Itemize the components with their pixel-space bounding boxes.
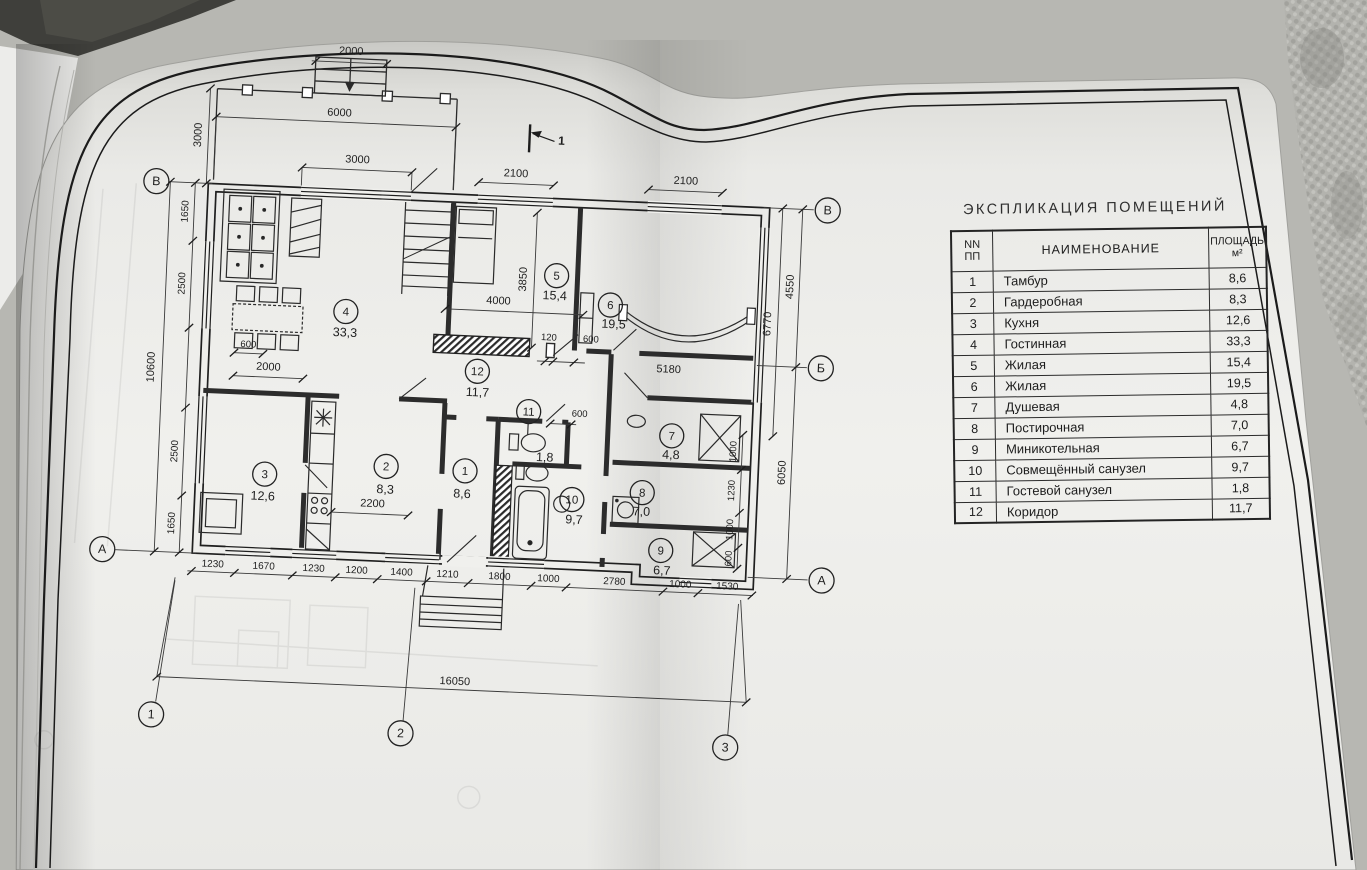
axis-label: В <box>152 174 161 188</box>
dim-label: 4550 <box>784 274 797 299</box>
axis-label: В <box>823 203 832 217</box>
fold-shadow-left <box>586 40 660 870</box>
dim-label: 16050 <box>439 675 470 688</box>
cell-num: 3 <box>952 313 994 335</box>
dim-label: 600 <box>571 408 587 420</box>
dim-label: 600 <box>240 339 256 351</box>
dim-label: 1800 <box>488 571 511 583</box>
room-area: 1,8 <box>536 450 554 465</box>
room-area: 9,7 <box>565 512 583 527</box>
dim-label: 600 <box>583 334 599 346</box>
dim-label: 2500 <box>169 439 181 462</box>
dim-label: 3850 <box>517 267 530 292</box>
cell-num: 4 <box>952 334 994 356</box>
room-number: 2 <box>383 461 390 473</box>
fabric-shade <box>1331 171 1363 239</box>
room-schedule: NN ПП НАИМЕНОВАНИЕ ПЛОЩАДЬ м² 1Тамбур8,6… <box>950 226 1271 524</box>
room-area: 33,3 <box>332 325 357 340</box>
room-area: 19,5 <box>601 317 626 332</box>
dim-label: 1670 <box>252 561 275 573</box>
fireplace-hatch <box>433 334 530 356</box>
cell-area: 12,6 <box>1210 309 1268 331</box>
cell-area: 8,6 <box>1209 267 1267 289</box>
dim-label: 1230 <box>302 563 325 575</box>
room-schedule-table: NN ПП НАИМЕНОВАНИЕ ПЛОЩАДЬ м² 1Тамбур8,6… <box>950 226 1271 524</box>
cell-num: 11 <box>954 481 996 503</box>
dim-label: 600 <box>723 550 735 566</box>
dim-label: 6050 <box>776 460 789 485</box>
cell-name: Кухня <box>994 310 1210 334</box>
dim-label: 1200 <box>345 565 368 577</box>
room-area: 4,8 <box>662 447 680 462</box>
room-number: 12 <box>471 366 484 379</box>
cell-area: 1,8 <box>1212 477 1270 499</box>
cell-area: 11,7 <box>1212 498 1270 520</box>
room-area: 6,7 <box>653 563 671 578</box>
room-number: 9 <box>657 545 664 557</box>
cell-area: 33,3 <box>1210 330 1268 352</box>
room-number: 7 <box>668 431 675 443</box>
cell-name: Гостевой санузел <box>996 478 1212 502</box>
dim-label: 2100 <box>504 167 529 180</box>
cell-area: 19,5 <box>1210 372 1268 394</box>
cell-num: 6 <box>953 376 995 398</box>
cell-name: Гостинная <box>994 331 1210 355</box>
dim-label: 2780 <box>603 576 626 588</box>
axis-label: 3 <box>721 740 729 754</box>
room-area: 8,6 <box>453 486 471 501</box>
room-area: 12,6 <box>250 489 275 504</box>
room-number: 1 <box>462 466 469 478</box>
axis-label: Б <box>816 361 825 375</box>
cell-num: 12 <box>955 502 997 524</box>
cell-area: 15,4 <box>1210 351 1268 373</box>
header-row: NN ПП НАИМЕНОВАНИЕ ПЛОЩАДЬ м² <box>951 227 1266 271</box>
cell-name: Коридор <box>996 499 1212 523</box>
dim-label: 2500 <box>176 272 188 295</box>
dim-label: 1000 <box>669 579 692 591</box>
dim-label: 3000 <box>192 122 205 147</box>
dim-label: 1650 <box>180 200 192 223</box>
dim-label: 4000 <box>486 295 511 308</box>
cell-area: 4,8 <box>1211 393 1269 415</box>
cell-area: 9,7 <box>1212 456 1270 478</box>
table-row: 12Коридор11,7 <box>955 498 1270 523</box>
dim-label: 3000 <box>345 153 370 166</box>
fabric-shade <box>1300 28 1344 88</box>
dim-label: 6000 <box>327 107 352 120</box>
col-header-area: ПЛОЩАДЬ м² <box>1208 227 1266 268</box>
cell-num: 10 <box>954 460 996 482</box>
room-area: 15,4 <box>542 288 567 303</box>
dim-label: 1530 <box>716 581 739 593</box>
cell-area: 6,7 <box>1211 435 1269 457</box>
col-header-number: NN ПП <box>951 231 993 272</box>
dim-label: 2000 <box>256 361 281 374</box>
cell-name: Жилая <box>994 352 1210 376</box>
cell-num: 1 <box>952 271 994 293</box>
axis-label: А <box>98 542 108 556</box>
cell-name: Душевая <box>995 394 1211 418</box>
cell-num: 2 <box>952 292 994 314</box>
sink-symbol <box>314 408 333 427</box>
axis-label: А <box>817 573 827 587</box>
dim-label: 1210 <box>436 569 459 581</box>
cell-name: Гардеробная <box>993 289 1209 313</box>
room-number: 6 <box>607 300 614 312</box>
cell-num: 5 <box>953 355 995 377</box>
porch-column <box>242 85 252 95</box>
cell-num: 9 <box>954 439 996 461</box>
dim-label: 1000 <box>724 519 736 541</box>
room-number: 10 <box>565 494 578 507</box>
room-area: 11,7 <box>465 385 489 400</box>
room-number: 5 <box>553 271 560 283</box>
cell-num: 8 <box>954 418 996 440</box>
cell-name: Тамбур <box>993 268 1209 292</box>
cell-name: Жилая <box>994 373 1210 397</box>
dim-label: 6770 <box>761 311 774 336</box>
photo-of-floor-plan-spread: 2000 6000 3000 3000 2100 2100 5180 4000 … <box>0 0 1367 870</box>
porch-column <box>440 93 450 103</box>
porch-column <box>302 87 312 97</box>
room-area: 8,3 <box>376 482 394 497</box>
cell-name: Миникотельная <box>995 436 1211 460</box>
cell-name: Совмещённый санузел <box>996 457 1212 481</box>
room-number: 3 <box>261 469 268 481</box>
dim-label: 1000 <box>728 441 740 463</box>
dim-label: 2000 <box>339 45 364 58</box>
room-number: 11 <box>522 406 534 419</box>
section-bar <box>529 124 530 152</box>
dim-label: 10600 <box>145 352 158 383</box>
fabric-shade <box>1338 294 1366 346</box>
dim-label: 5180 <box>656 363 681 376</box>
dim-label: 2100 <box>673 175 698 188</box>
dim-label: 1000 <box>537 573 560 585</box>
dim-label: 1400 <box>390 567 413 579</box>
dim-label: 1650 <box>166 511 178 534</box>
dim-label: 2200 <box>360 497 385 510</box>
section-label: 1 <box>558 134 566 148</box>
room-number: 8 <box>639 487 646 499</box>
cell-num: 7 <box>953 397 995 419</box>
room-area: 7,0 <box>632 504 650 519</box>
cell-name: Постирочная <box>995 415 1211 439</box>
axis-label: 2 <box>397 726 405 740</box>
dim-label: 1230 <box>201 558 224 570</box>
dim-label: 120 <box>541 332 557 344</box>
dim-label: 1230 <box>726 480 738 502</box>
col-header-name: НАИМЕНОВАНИЕ <box>992 228 1209 271</box>
axis-label: 1 <box>147 707 155 721</box>
cell-area: 7,0 <box>1211 414 1269 436</box>
vent-shaft-hatch <box>492 465 512 558</box>
room-number: 4 <box>342 306 350 318</box>
cell-area: 8,3 <box>1209 288 1267 310</box>
